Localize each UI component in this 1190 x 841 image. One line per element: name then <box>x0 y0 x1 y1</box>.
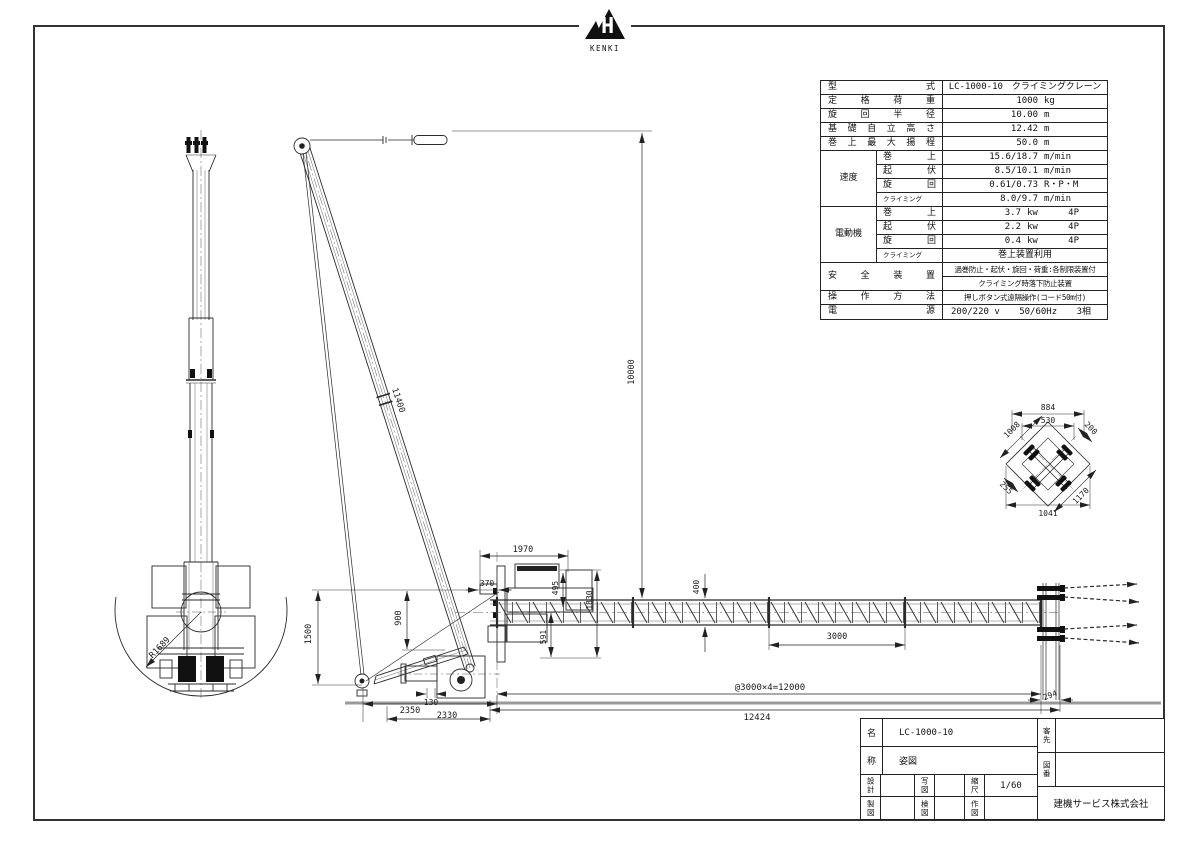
spec-value-lift: 50.0m <box>943 137 1107 151</box>
spec-label-operation: 操作方法 <box>821 291 943 305</box>
titleblock-name-label: 名 <box>861 719 883 747</box>
dim-mast-depth: 400 <box>692 580 701 595</box>
titleblock-make-field <box>985 797 1038 819</box>
titleblock-design-field <box>881 775 915 797</box>
spec-motor-sub-luff: 起伏 <box>877 221 943 235</box>
spec-safety-line2: クライミング時落下防止装置 <box>943 277 1107 291</box>
dim-2350: 2350 <box>400 706 420 716</box>
titleblock-draft-label: 製図 <box>861 797 881 819</box>
dim-hook-height: 10000 <box>627 359 637 385</box>
spec-value-model: LC-1000-10 クライミングクレーン <box>943 81 1107 95</box>
detail-dim-530: 530 <box>1041 416 1056 425</box>
spec-label-lift: 巻上最大揚程 <box>821 137 943 151</box>
spec-motor-sub-slew: 旋回 <box>877 235 943 249</box>
spec-value-radius: 10.00m <box>943 109 1107 123</box>
kenki-logo-text: KENKI <box>579 45 631 53</box>
title-block: 名 LC-1000-10 称 姿図 設計 写図 縮尺 1/60 製図 検図 作図… <box>860 718 1165 820</box>
titleblock-scale-value: 1/60 <box>985 775 1038 797</box>
spec-label-capacity: 定格荷重 <box>821 95 943 109</box>
dim-boom-length: 11400 <box>389 387 406 414</box>
spec-label-radius: 旋回半径 <box>821 109 943 123</box>
spec-motor-luff: 2.2kw4P <box>943 221 1107 235</box>
detail-dim-884: 884 <box>1041 403 1056 412</box>
detail-dim-255: 255 <box>998 480 1015 497</box>
titleblock-model: LC-1000-10 <box>883 719 1038 747</box>
spec-group-speed: 速度 <box>821 151 877 207</box>
spec-speed-climbing: 8.0/9.7m/min <box>943 193 1107 207</box>
spec-label-power: 電源 <box>821 305 943 319</box>
titleblock-make-label: 作図 <box>965 797 985 819</box>
spec-label-model: 型式 <box>821 81 943 95</box>
spec-label-safety: 安全装置 <box>821 263 943 291</box>
dim-overall: 12424 <box>743 713 770 723</box>
spec-speed-hoist: 15.6/18.7m/min <box>943 151 1107 165</box>
titleblock-dwgno-label: 図番 <box>1038 753 1056 787</box>
titleblock-drawing-type: 姿図 <box>883 747 1038 775</box>
detail-dim-1170: 1170 <box>1071 486 1091 506</box>
detail-dim-1008: 1008 <box>1002 420 1022 440</box>
spec-motor-sub-climbing: クライミング <box>877 249 943 263</box>
spec-sub-luff: 起伏 <box>877 165 943 179</box>
spec-sub-slew: 旋回 <box>877 179 943 193</box>
dim-segment-3000: 3000 <box>827 632 847 642</box>
dim-495: 495 <box>551 581 560 596</box>
spec-motor-climbing: 巻上装置利用 <box>943 249 1107 263</box>
spec-value-height: 12.42m <box>943 123 1107 137</box>
titleblock-copy-label: 写図 <box>915 775 935 797</box>
dim-130: 130 <box>424 698 439 707</box>
titleblock-customer-label: 客先 <box>1038 719 1056 753</box>
dim-1500: 1500 <box>304 624 314 644</box>
dim-mast-total: @3000×4=12000 <box>735 683 805 693</box>
titleblock-draft-field <box>881 797 915 819</box>
spec-table: 型式 LC-1000-10 クライミングクレーン 定格荷重 1000kg 旋回半… <box>820 80 1108 320</box>
spec-sub-hoist: 巻上 <box>877 151 943 165</box>
spec-motor-sub-hoist: 巻上 <box>877 207 943 221</box>
spec-operation-value: 押しボタン式遠隔操作(コード50m付) <box>943 291 1107 305</box>
detail-dim-1041: 1041 <box>1038 509 1057 518</box>
spec-value-capacity: 1000kg <box>943 95 1107 109</box>
dim-900: 900 <box>394 610 404 625</box>
titleblock-dwgno-field <box>1056 753 1164 787</box>
titleblock-scale-label: 縮尺 <box>965 775 985 797</box>
dim-2330: 2330 <box>437 711 457 721</box>
dimension-labels: 11400 10000 1970 370 495 1830 591 1500 9… <box>148 359 1059 723</box>
spec-speed-luff: 8.5/10.1m/min <box>943 165 1107 179</box>
spec-sub-climbing: クライミング <box>877 193 943 207</box>
dim-1830: 1830 <box>585 590 594 609</box>
drawing-sheet: KENKI <box>0 0 1190 841</box>
spec-speed-slew: 0.61/0.73R・P・M <box>943 179 1107 193</box>
spec-motor-slew: 0.4kw4P <box>943 235 1107 249</box>
titleblock-design-label: 設計 <box>861 775 881 797</box>
kenki-logo: KENKI <box>579 8 631 53</box>
spec-power-value: 200/220 v50/60Hz3相 <box>943 305 1107 319</box>
dim-offset-370: 370 <box>480 579 495 588</box>
front-view <box>115 130 287 700</box>
detail-dim-200: 200 <box>1082 420 1099 437</box>
titleblock-company: 建機サービス株式会社 <box>1038 787 1164 819</box>
dim-machine-width: 1970 <box>513 545 533 555</box>
dim-591: 591 <box>539 630 548 645</box>
spec-motor-hoist: 3.7kw4P <box>943 207 1107 221</box>
spec-safety-line1: 過巻防止・起伏・旋回・荷重:各制限装置付 <box>943 263 1107 277</box>
titleblock-sub-label: 称 <box>861 747 883 775</box>
titleblock-check-field <box>935 797 965 819</box>
titleblock-copy-field <box>935 775 965 797</box>
spec-group-motor: 電動機 <box>821 207 877 263</box>
kenki-mountain-icon <box>585 8 625 41</box>
titleblock-check-label: 検図 <box>915 797 935 819</box>
titleblock-customer-field <box>1056 719 1164 753</box>
spec-label-height: 基礎自立高さ <box>821 123 943 137</box>
